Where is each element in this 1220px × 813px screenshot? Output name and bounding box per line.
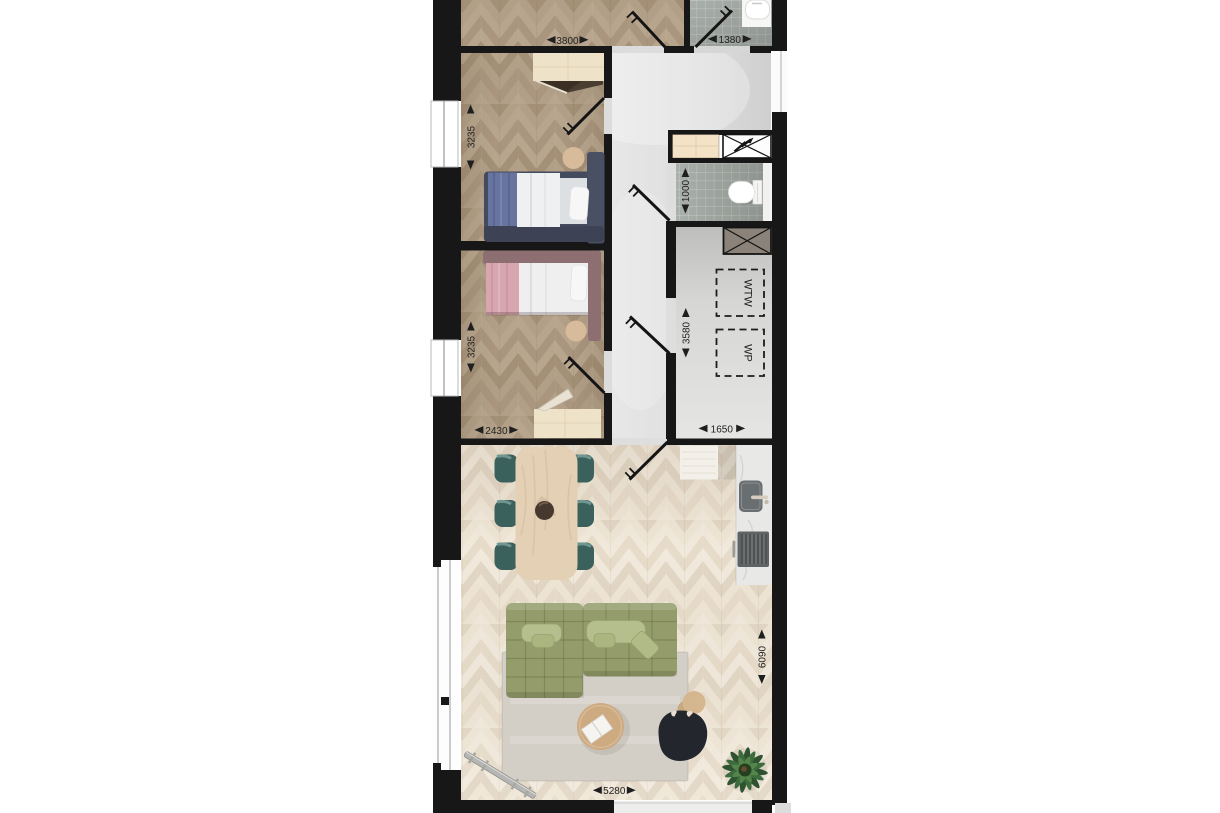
svg-text:WP: WP [742, 344, 754, 362]
svg-text:1650: 1650 [711, 424, 734, 435]
svg-text:1000: 1000 [681, 179, 692, 202]
svg-text:3235: 3235 [466, 125, 477, 148]
svg-text:1380: 1380 [719, 35, 742, 46]
svg-text:2430: 2430 [485, 426, 508, 437]
svg-text:WTW: WTW [742, 279, 754, 307]
svg-text:3580: 3580 [682, 321, 693, 344]
svg-text:3800: 3800 [556, 36, 579, 47]
svg-text:6090: 6090 [758, 645, 769, 668]
svg-text:5280: 5280 [603, 786, 626, 797]
svg-text:3235: 3235 [467, 335, 478, 358]
